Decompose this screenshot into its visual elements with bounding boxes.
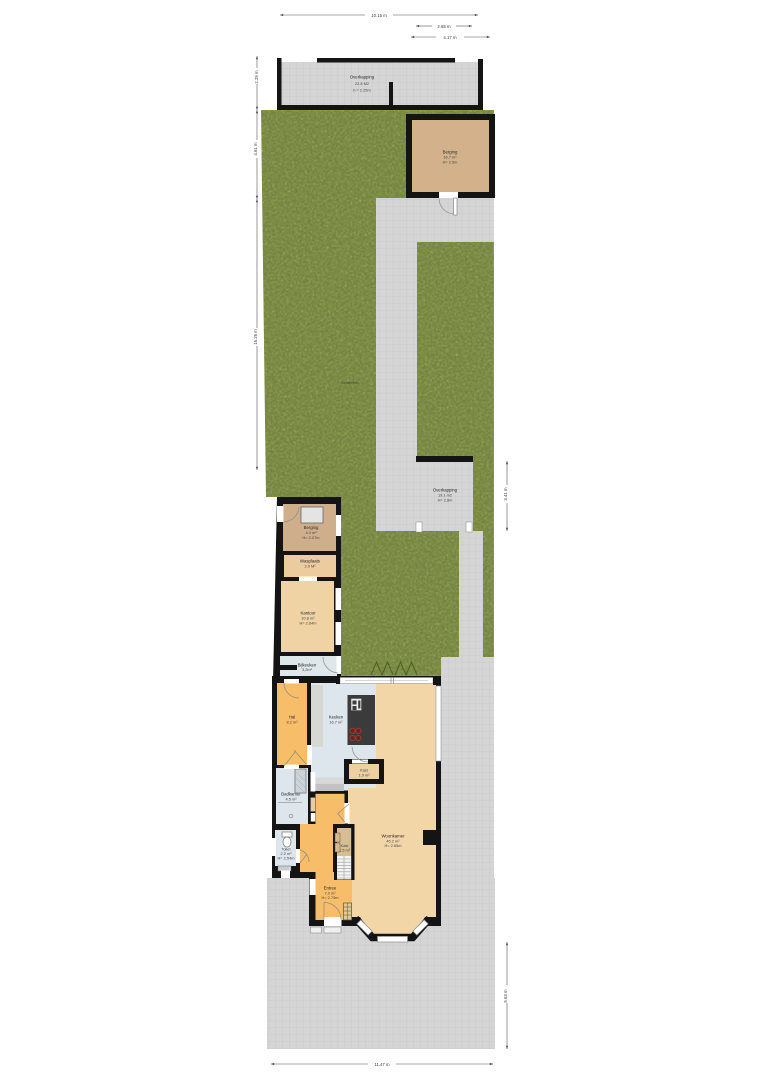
svg-text:h = 2.25m: h = 2.25m <box>353 88 370 93</box>
svg-text:H= 2.54m: H= 2.54m <box>278 856 295 861</box>
svg-text:11.47 m: 11.47 m <box>374 1062 390 1067</box>
svg-text:3,2m²: 3,2m² <box>302 667 313 672</box>
svg-text:4.61 m: 4.61 m <box>253 142 258 156</box>
svg-text:10.15 m: 10.15 m <box>371 13 387 18</box>
svg-text:1.5 m²: 1.5 m² <box>339 848 351 853</box>
svg-text:Achtertuin: Achtertuin <box>341 380 359 385</box>
svg-text:Overkapping: Overkapping <box>350 75 375 80</box>
svg-text:15.26 m: 15.26 m <box>253 329 258 345</box>
svg-text:4.5 m²: 4.5 m² <box>285 796 297 801</box>
svg-text:16.7 m²: 16.7 m² <box>329 720 343 725</box>
svg-text:4.17 m: 4.17 m <box>443 35 457 40</box>
svg-text:2.25 m: 2.25 m <box>254 70 259 84</box>
svg-text:H= 2.65m: H= 2.65m <box>385 843 402 848</box>
svg-text:H= 2,8m: H= 2,8m <box>438 498 453 503</box>
svg-text:22.8 M2: 22.8 M2 <box>355 81 369 86</box>
svg-text:H= 2.07m: H= 2.07m <box>303 535 320 540</box>
svg-text:2.65 m: 2.65 m <box>437 24 451 29</box>
svg-text:5.63 m: 5.63 m <box>503 989 508 1003</box>
svg-text:H= 2.64m: H= 2.64m <box>300 621 317 626</box>
svg-text:1.0 m²: 1.0 m² <box>358 772 370 777</box>
svg-text:H= 2.5m: H= 2.5m <box>443 160 458 165</box>
svg-text:3.41 m: 3.41 m <box>503 487 508 501</box>
svg-text:2.0 M²: 2.0 M² <box>304 564 316 569</box>
svg-text:H= 2.75m: H= 2.75m <box>322 895 339 900</box>
svg-text:8.2 m²: 8.2 m² <box>286 720 298 725</box>
